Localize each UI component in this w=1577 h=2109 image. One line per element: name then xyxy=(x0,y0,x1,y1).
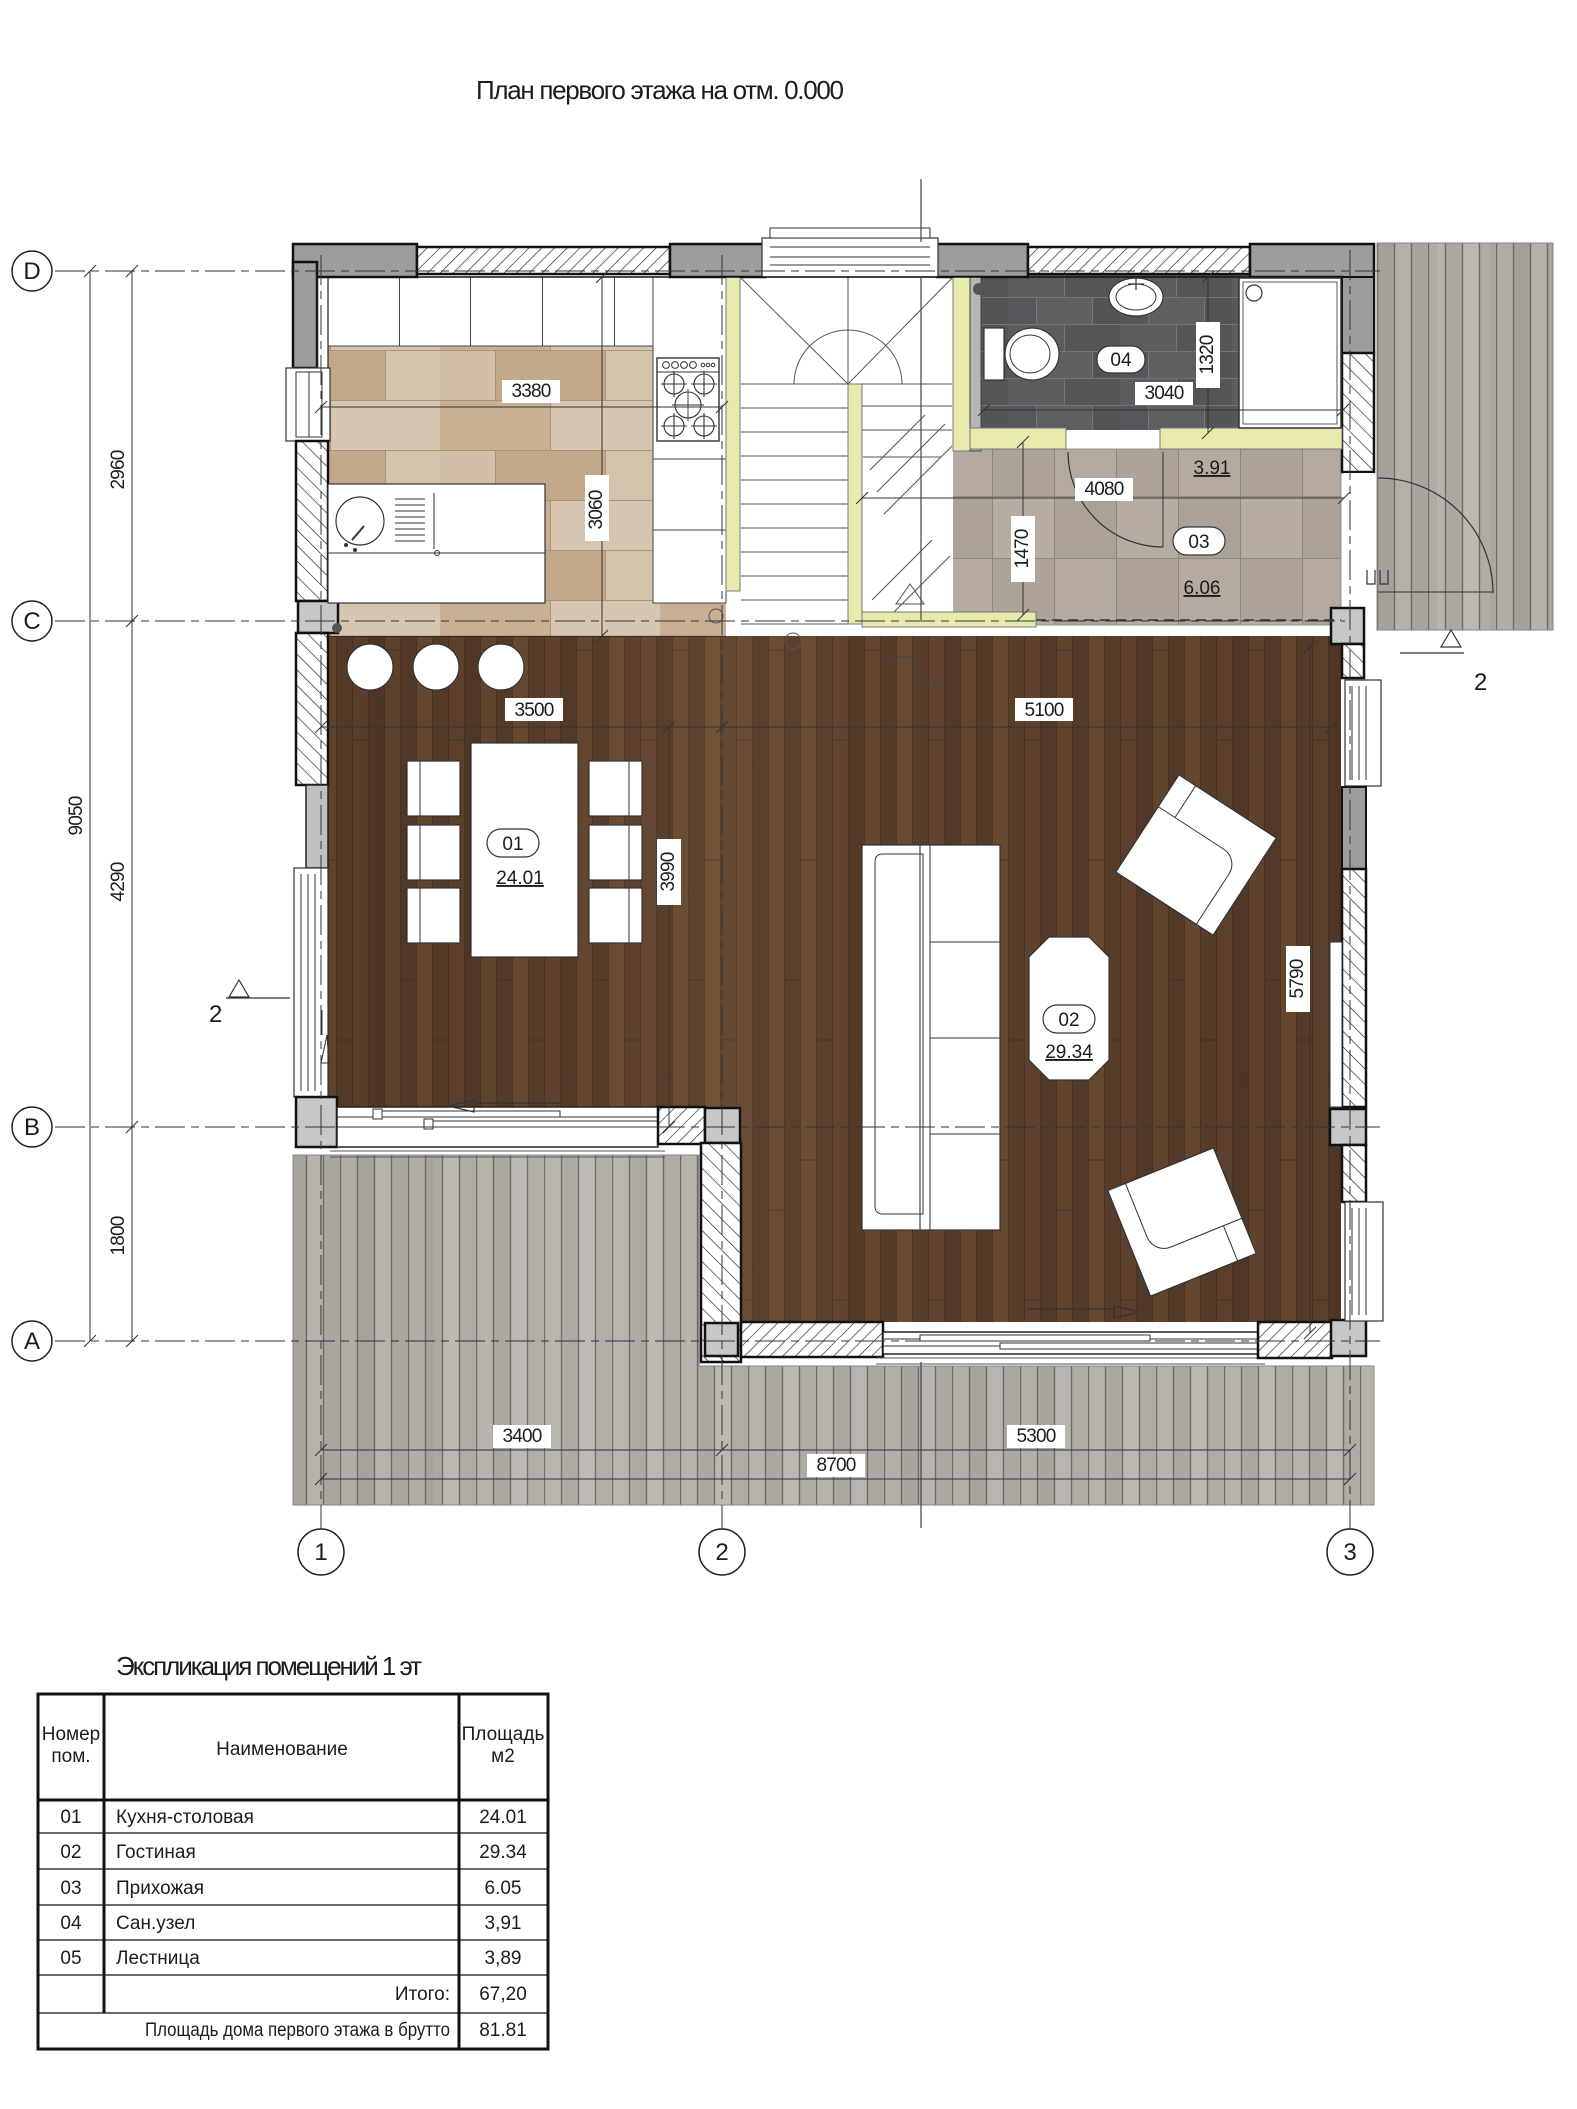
svg-text:1: 1 xyxy=(314,1539,327,1566)
svg-text:Кухня-столовая: Кухня-столовая xyxy=(116,1807,254,1828)
svg-text:9050: 9050 xyxy=(66,796,87,835)
svg-text:1470: 1470 xyxy=(1012,529,1033,568)
svg-text:2: 2 xyxy=(209,1001,222,1028)
svg-text:04: 04 xyxy=(60,1913,82,1934)
svg-text:3: 3 xyxy=(1343,1539,1356,1566)
svg-text:04: 04 xyxy=(1110,350,1132,371)
svg-text:Наименование: Наименование xyxy=(216,1739,348,1760)
svg-text:Гостиная: Гостиная xyxy=(116,1842,196,1863)
svg-text:4290: 4290 xyxy=(108,862,129,901)
svg-text:3,89: 3,89 xyxy=(485,1948,522,1969)
svg-text:5100: 5100 xyxy=(1024,700,1063,721)
svg-text:5300: 5300 xyxy=(1016,1426,1055,1447)
svg-text:67,20: 67,20 xyxy=(479,1984,527,2005)
svg-text:Площадь: Площадь xyxy=(462,1724,545,1745)
svg-text:Экспликация помещений 1 эт: Экспликация помещений 1 эт xyxy=(116,1651,422,1681)
svg-text:Площадь дома первого этажа в б: Площадь дома первого этажа в брутто xyxy=(145,2020,450,2041)
svg-text:03: 03 xyxy=(1188,532,1209,553)
svg-text:4080: 4080 xyxy=(1084,479,1123,500)
svg-text:2: 2 xyxy=(1474,669,1487,696)
svg-text:24.01: 24.01 xyxy=(496,868,544,889)
svg-text:3400: 3400 xyxy=(502,1426,541,1447)
svg-text:Прихожая: Прихожая xyxy=(116,1878,204,1899)
svg-text:м2: м2 xyxy=(491,1746,515,1767)
svg-text:05: 05 xyxy=(60,1948,81,1969)
svg-text:29.34: 29.34 xyxy=(1045,1042,1093,1063)
svg-text:6.06: 6.06 xyxy=(1184,578,1221,599)
svg-text:Сан.узел: Сан.узел xyxy=(116,1913,195,1934)
svg-text:01: 01 xyxy=(502,834,523,855)
svg-text:81.81: 81.81 xyxy=(479,2020,527,2041)
svg-text:пом.: пом. xyxy=(51,1746,90,1767)
svg-text:B: B xyxy=(24,1114,40,1141)
svg-text:3,91: 3,91 xyxy=(485,1913,522,1934)
svg-text:3040: 3040 xyxy=(1144,383,1183,404)
svg-text:6.05: 6.05 xyxy=(485,1878,522,1899)
svg-text:3380: 3380 xyxy=(511,381,550,402)
svg-text:02: 02 xyxy=(60,1842,81,1863)
svg-text:29.34: 29.34 xyxy=(479,1842,527,1863)
svg-text:1800: 1800 xyxy=(108,1216,129,1255)
svg-text:Лестница: Лестница xyxy=(116,1948,200,1969)
svg-text:2960: 2960 xyxy=(108,450,129,489)
svg-text:1320: 1320 xyxy=(1197,335,1218,374)
svg-text:3500: 3500 xyxy=(514,700,553,721)
svg-text:Итого:: Итого: xyxy=(395,1984,450,2005)
svg-text:24.01: 24.01 xyxy=(479,1807,527,1828)
svg-text:3060: 3060 xyxy=(586,490,607,529)
svg-text:03: 03 xyxy=(60,1878,81,1899)
svg-text:2: 2 xyxy=(715,1539,728,1566)
svg-text:D: D xyxy=(23,258,40,285)
svg-text:3990: 3990 xyxy=(658,852,679,891)
svg-text:02: 02 xyxy=(1058,1010,1079,1031)
svg-text:C: C xyxy=(23,608,40,635)
svg-text:Номер: Номер xyxy=(42,1724,100,1745)
svg-text:План первого этажа на отм. 0.0: План первого этажа на отм. 0.000 xyxy=(476,75,844,105)
svg-text:8700: 8700 xyxy=(816,1455,855,1476)
svg-text:01: 01 xyxy=(60,1807,81,1828)
svg-text:A: A xyxy=(24,1328,40,1355)
svg-text:5790: 5790 xyxy=(1287,959,1308,998)
svg-text:3.91: 3.91 xyxy=(1194,458,1231,479)
